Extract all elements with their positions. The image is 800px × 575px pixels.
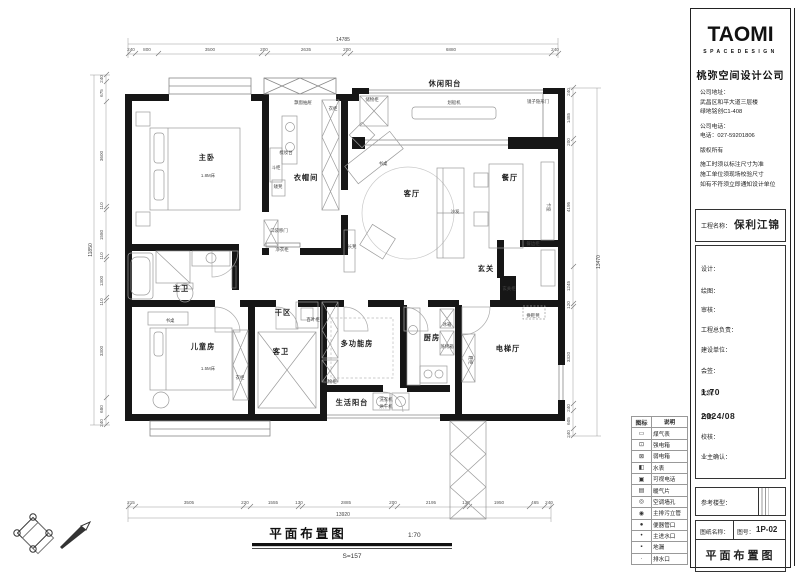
svg-text:1.5M床: 1.5M床 (201, 365, 216, 372)
dressing-table (282, 116, 297, 164)
svg-text:130: 130 (295, 500, 303, 505)
svg-text:镜子隐形门: 镜子隐形门 (527, 98, 549, 105)
radiator-icon: ▤ (632, 485, 652, 496)
video-phone-icon: ▣ (632, 473, 652, 484)
plan-title: 平面布置图 1:70 S=157 (252, 526, 452, 560)
scale-value: 1:70 (701, 387, 720, 397)
room-master-bedroom: 主卧 (199, 153, 215, 162)
svg-text:200: 200 (343, 47, 351, 52)
svg-text:储物柜: 储物柜 (323, 378, 337, 385)
bed-master (150, 128, 240, 210)
drain-outlet-icon: · (632, 553, 652, 564)
svg-text:240: 240 (127, 47, 135, 52)
svg-text:鞋柜: 鞋柜 (467, 356, 474, 365)
tatami (331, 318, 393, 378)
water-meter-icon: ◧ (632, 462, 652, 473)
svg-text:200: 200 (260, 47, 268, 52)
svg-text:净衣柜: 净衣柜 (275, 246, 289, 253)
svg-text:1245: 1245 (566, 280, 571, 291)
svg-text:110: 110 (99, 252, 104, 260)
svg-text:飘窗抽屉: 飘窗抽屉 (294, 99, 312, 106)
room-dry-area: 干区 (275, 308, 291, 317)
gas-meter-icon: ▭ (632, 428, 652, 439)
svg-text:240: 240 (99, 419, 104, 427)
svg-text:120: 120 (566, 301, 571, 309)
field-date: 日期:2024/08 (701, 408, 782, 421)
svg-text:矮凳: 矮凳 (274, 183, 283, 190)
svg-text:110: 110 (99, 298, 104, 306)
svg-text:1.8M床: 1.8M床 (201, 172, 216, 179)
dim-right-total: 13470 (596, 255, 602, 269)
svg-text:215: 215 (127, 500, 135, 505)
svg-text:1950: 1950 (494, 500, 505, 505)
svg-text:3505: 3505 (184, 500, 195, 505)
legend-table: 图标 说明 ▭煤气表 ⊡强电箱 ⊠弱电箱 ◧水表 ▣可视电话 ▤暖气片 ◎空调墙… (631, 416, 688, 565)
sheet-number: 1P-02 (756, 525, 777, 534)
signature-fields-box: 设计： 绘图： 审核： 工程总负责： 建设单位： 会签： 比例:1:70 日期:… (695, 245, 786, 479)
field-owner: 业主确认： (701, 448, 782, 461)
company-info: 公司地址： 武昌区和平大道三层楼 绿地铭创C1-408 公司电话： 电话：027… (700, 89, 784, 190)
room-kitchen: 厨房 (424, 333, 440, 342)
water-inlet-icon: • (632, 530, 652, 541)
reference-hatch (758, 488, 771, 515)
legend-row: ▭煤气表 (632, 428, 688, 439)
svg-text:2635: 2635 (301, 47, 312, 52)
sheet-info-box: 图纸名称： 图号： 1P-02 平面布置图 (695, 520, 786, 572)
legend-row: ⊡强电箱 (632, 439, 688, 450)
svg-text:4195: 4195 (566, 201, 571, 212)
svg-text:3600: 3600 (99, 150, 104, 161)
weak-power-box-icon: ⊠ (632, 451, 652, 462)
floor-plan: 14785 240 800 3500 200 2635 200 6880 240… (0, 0, 660, 575)
svg-text:斗柜: 斗柜 (272, 164, 281, 171)
svg-text:卡座: 卡座 (545, 203, 552, 212)
svg-text:240: 240 (566, 88, 571, 96)
svg-text:200: 200 (566, 138, 571, 146)
svg-text:储物柜: 储物柜 (365, 96, 379, 103)
svg-text:沙发: 沙发 (451, 208, 460, 215)
room-kids: 儿童房 (190, 342, 216, 351)
sheet-name: 平面布置图 (696, 547, 785, 563)
svg-text:冰箱: 冰箱 (443, 321, 452, 328)
legend-row: ◧水表 (632, 462, 688, 473)
legend-row: ▪地漏 (632, 542, 688, 553)
svg-text:1580: 1580 (99, 229, 104, 240)
svg-text:百叶柜: 百叶柜 (306, 316, 320, 323)
svg-text:划船机: 划船机 (447, 99, 461, 106)
room-service-balcony: 生活阳台 (336, 398, 369, 407)
booth-seat (541, 162, 554, 240)
legend-row: ◉主排污立管 (632, 508, 688, 519)
field-scale: 比例:1:70 (701, 384, 782, 397)
svg-text:200: 200 (389, 500, 397, 505)
field-review: 审核： (701, 301, 782, 314)
svg-text:3300: 3300 (99, 345, 104, 356)
room-living: 客厅 (403, 189, 420, 198)
svg-text:1300: 1300 (99, 275, 104, 286)
svg-text:衣柜: 衣柜 (329, 105, 338, 112)
room-elevator-hall: 电梯厅 (496, 344, 521, 353)
strong-power-box-icon: ⊡ (632, 439, 652, 450)
svg-text:蒸烤箱: 蒸烤箱 (440, 343, 454, 350)
svg-text:换鞋凳: 换鞋凳 (526, 312, 540, 319)
svg-text:餐边柜: 餐边柜 (526, 240, 540, 247)
svg-text:110: 110 (99, 202, 104, 210)
dim-left-total: 11850 (88, 243, 94, 257)
legend-row: ◎空调墙孔 (632, 496, 688, 507)
svg-text:书桌: 书桌 (166, 317, 175, 324)
right-margin-strip (794, 8, 800, 566)
company-name: 桃弥空间设计公司 (691, 67, 790, 82)
svg-text:220: 220 (241, 500, 249, 505)
legend-row: ·排水口 (632, 553, 688, 564)
floor-drain-icon: ▪ (632, 542, 652, 553)
svg-text:洗衣机: 洗衣机 (379, 396, 393, 403)
room-dining: 餐厅 (501, 173, 518, 182)
svg-text:1485: 1485 (566, 112, 571, 123)
svg-text:玄关柜: 玄关柜 (502, 285, 516, 292)
room-foyer: 玄关 (478, 264, 494, 273)
field-builder: 建设单位： (701, 341, 782, 354)
plan-area-text: S=157 (343, 553, 362, 560)
walls (125, 88, 565, 421)
room-master-bath: 主卫 (173, 284, 189, 293)
sideboard (541, 250, 555, 286)
svg-text:口袋移门: 口袋移门 (270, 227, 288, 234)
project-name: 保利江锦 (734, 217, 780, 232)
room-multi: 多功能房 (341, 339, 374, 348)
field-sign: 会签： (701, 362, 782, 375)
kitchen-counter (407, 308, 420, 385)
dim-top-total: 14785 (336, 37, 350, 43)
svg-text:240: 240 (99, 75, 104, 83)
room-leisure-balcony: 休闲阳台 (428, 79, 462, 88)
svg-text:2195: 2195 (426, 500, 437, 505)
legend-row: ●便器管口 (632, 519, 688, 530)
svg-text:梳妆台: 梳妆台 (279, 149, 293, 156)
field-design: 设计： (701, 260, 782, 273)
svg-text:465: 465 (531, 500, 539, 505)
title-block: TAOMI SPACEDESIGN 桃弥空间设计公司 公司地址： 武昌区和平大道… (690, 8, 791, 568)
svg-text:605: 605 (566, 417, 571, 425)
legend-row: ▤暖气片 (632, 485, 688, 496)
svg-text:烘干机: 烘干机 (379, 403, 393, 410)
project-name-box: 工程名称： 保利江锦 (695, 209, 786, 242)
company-logo-subtitle: SPACEDESIGN (691, 49, 790, 55)
svg-text:书桌: 书桌 (379, 160, 388, 167)
wardrobe-kids (233, 330, 248, 400)
reference-model-box: 参考楼型： (695, 487, 786, 516)
north-pen-icon (60, 522, 90, 549)
svg-text:240: 240 (545, 500, 553, 505)
svg-text:3500: 3500 (205, 47, 216, 52)
company-logo: TAOMI (691, 23, 790, 47)
svg-text:6880: 6880 (446, 47, 457, 52)
room-cloakroom: 衣帽间 (294, 173, 319, 182)
svg-text:衣柜: 衣柜 (236, 374, 245, 381)
plan-title-scale: 1:70 (408, 532, 421, 539)
svg-text:长凳: 长凳 (348, 243, 357, 250)
legend-row: •主进水口 (632, 530, 688, 541)
legend-row: ▣可视电话 (632, 473, 688, 484)
svg-text:3320: 3320 (566, 351, 571, 362)
legend-row: ⊠弱电箱 (632, 451, 688, 462)
toilet-outlet-icon: ● (632, 519, 652, 530)
bed-kids (150, 328, 232, 390)
legend-header: 图标 说明 (632, 417, 688, 428)
drawing-sheet: { "drawing": { "footer": {"title": "平面布置… (0, 0, 800, 575)
plan-title-text: 平面布置图 (269, 526, 347, 541)
ac-wall-hole-icon: ◎ (632, 496, 652, 507)
compass-logo (14, 514, 54, 554)
svg-text:240: 240 (551, 47, 559, 52)
rowing-machine (412, 107, 496, 119)
date-value: 2024/08 (701, 411, 735, 421)
svg-text:240: 240 (566, 404, 571, 412)
field-chief: 工程总负责： (701, 321, 782, 334)
dim-bottom-total: 13920 (336, 512, 350, 518)
room-guest-bath: 客卫 (272, 347, 289, 356)
svg-text:240: 240 (566, 430, 571, 438)
sewage-riser-icon: ◉ (632, 508, 652, 519)
svg-text:2885: 2885 (341, 500, 352, 505)
svg-text:675: 675 (99, 89, 104, 97)
field-draw: 绘图： (701, 282, 782, 295)
field-check: 校核： (701, 428, 782, 441)
svg-text:680: 680 (99, 405, 104, 413)
svg-text:1555: 1555 (268, 500, 279, 505)
svg-text:800: 800 (143, 47, 151, 52)
